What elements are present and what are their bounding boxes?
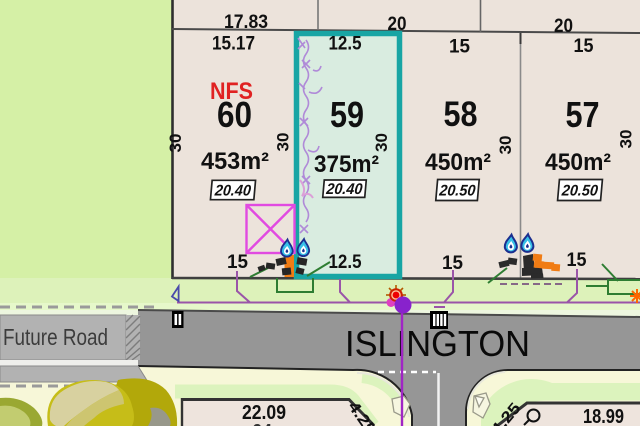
svg-text:15: 15 <box>227 252 248 273</box>
svg-text:15: 15 <box>574 36 594 57</box>
svg-text:30: 30 <box>496 136 515 155</box>
svg-text:30: 30 <box>372 133 391 152</box>
svg-text:64: 64 <box>252 421 272 426</box>
svg-text:60: 60 <box>217 94 252 135</box>
svg-text:20: 20 <box>554 16 573 37</box>
svg-text:30: 30 <box>274 133 293 152</box>
svg-text:375m²: 375m² <box>314 151 379 178</box>
svg-text:12.5: 12.5 <box>329 34 362 55</box>
svg-text:20.40: 20.40 <box>213 183 252 200</box>
svg-text:15: 15 <box>449 37 470 58</box>
svg-text:58: 58 <box>444 95 478 134</box>
svg-text:18.99: 18.99 <box>583 406 624 426</box>
svg-text:20: 20 <box>388 14 407 35</box>
svg-text:17.83: 17.83 <box>224 12 268 33</box>
svg-text:57: 57 <box>566 94 600 135</box>
svg-text:30: 30 <box>617 130 636 149</box>
svg-text:15: 15 <box>567 250 587 271</box>
svg-text:30: 30 <box>166 134 185 153</box>
svg-text:15.17: 15.17 <box>212 34 255 55</box>
svg-text:450m²: 450m² <box>545 149 611 176</box>
svg-text:453m²: 453m² <box>201 148 269 175</box>
svg-text:Future Road: Future Road <box>3 324 108 350</box>
svg-text:12.5: 12.5 <box>329 252 362 273</box>
svg-text:ISLINGTON: ISLINGTON <box>345 323 530 364</box>
svg-text:20.40: 20.40 <box>325 181 364 198</box>
svg-text:20.50: 20.50 <box>438 183 477 200</box>
svg-text:20.50: 20.50 <box>560 183 599 200</box>
svg-text:450m²: 450m² <box>425 149 491 176</box>
svg-text:59: 59 <box>330 94 364 135</box>
